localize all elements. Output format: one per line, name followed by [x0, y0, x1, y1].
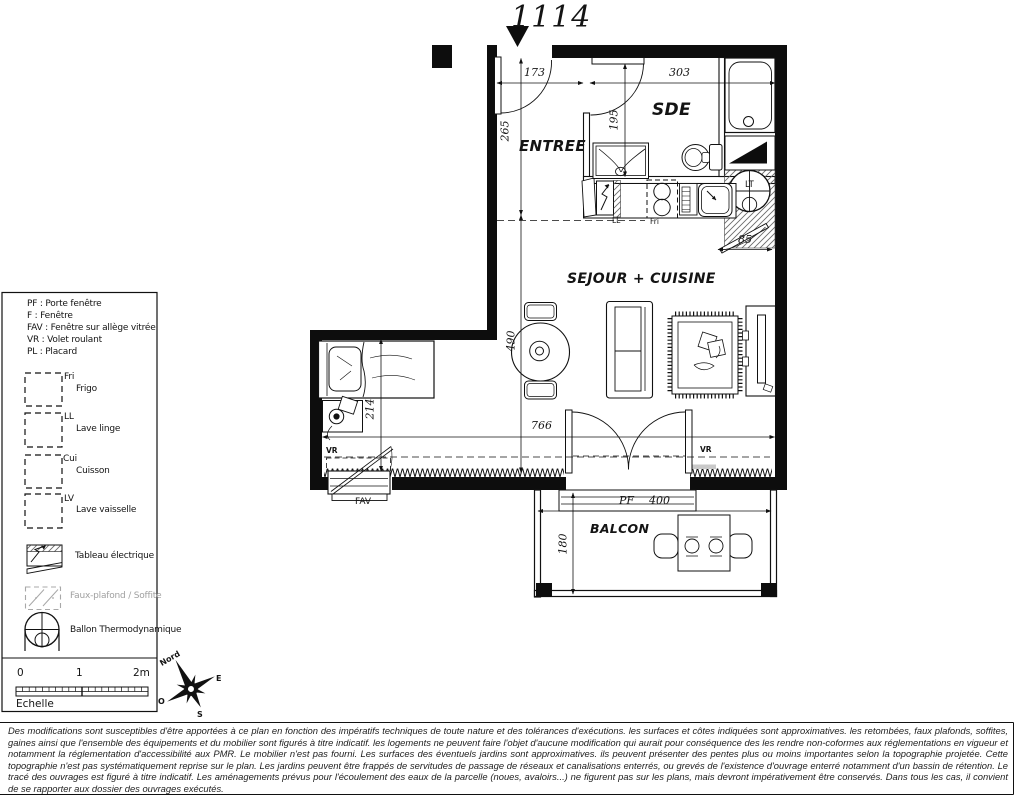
legend-abbr-f: F : Fenêtre [27, 311, 73, 321]
rug [670, 314, 741, 397]
tv-unit [743, 306, 776, 396]
scale-bar [16, 687, 148, 696]
dim-entree-width: 173 [524, 66, 545, 79]
washbasin [593, 143, 649, 179]
legend-false-ceiling-icon [26, 587, 61, 610]
dim-bed-alcove: 214 [364, 399, 377, 420]
vanity [725, 136, 775, 170]
legend-lv-name: Lave vaisselle [76, 505, 136, 515]
dim-closet-door: 85 [738, 233, 752, 246]
legend-appliance-boxes [25, 373, 62, 528]
kitchen-sink [699, 184, 733, 217]
room-label-sde: SDE [652, 100, 691, 120]
legend-water-heater-icon [25, 613, 59, 652]
scale-label: Echelle [16, 698, 54, 710]
label-pf: PF [619, 494, 634, 507]
room-label-balcon: BALCON [590, 521, 649, 536]
shower [725, 58, 775, 133]
bed [319, 341, 435, 398]
kitchen-counter [582, 178, 736, 218]
floor-plan-page: 1114 ENTREE SDE SEJOUR + CUISINE BALCON … [0, 0, 1015, 800]
toilet [682, 145, 722, 171]
compass-east-label: E [216, 674, 221, 683]
dining-table [512, 303, 570, 400]
unit-number: 1114 [511, 0, 591, 35]
label-water-heater: LT [745, 180, 754, 190]
legend-abbr-vr: VR : Volet roulant [27, 335, 102, 345]
scale-tick-1: 1 [76, 667, 83, 679]
legend-fri-name: Frigo [76, 384, 97, 394]
disclaimer-text: Des modifications sont susceptibles d'êt… [8, 725, 1008, 795]
dim-sde-depth: 195 [608, 110, 621, 131]
sde-door [591, 58, 645, 116]
dim-sde-width: 303 [669, 66, 690, 79]
legend-cui-abbr: Cui [63, 454, 77, 464]
scale-tick-0: 0 [17, 667, 24, 679]
legend-abbr-pf: PF : Porte fenêtre [27, 299, 102, 309]
legend-electrical-panel-icon [27, 545, 62, 574]
dim-balcony-width: 400 [649, 494, 670, 507]
label-fridge: Fri [650, 217, 659, 226]
balcony-table-set [654, 515, 752, 571]
label-vr-left: VR [326, 446, 338, 455]
legend-cui-name: Cuisson [76, 466, 110, 476]
washing-machine-strip [614, 181, 621, 218]
legend-abbr-fav: FAV : Fenêtre sur allège vitrée [27, 323, 156, 333]
legend-water-heater-label: Ballon Thermodynamique [70, 625, 181, 635]
dim-balcony-depth: 180 [557, 534, 570, 555]
electrical-panel [597, 181, 614, 215]
nightstand [323, 396, 363, 440]
legend-ll-name: Lave linge [76, 424, 120, 434]
room-label-sejour: SEJOUR + CUISINE [567, 271, 716, 287]
legend-lv-abbr: LV [64, 494, 74, 504]
dim-sejour-depth: 490 [505, 331, 518, 352]
legend-abbr-pl: PL : Placard [27, 347, 77, 357]
legend-electrical-panel-label: Tableau électrique [75, 551, 154, 561]
dim-sejour-width: 766 [531, 419, 552, 432]
label-vr-right: VR [700, 445, 712, 454]
legend-fri-abbr: Fri [64, 372, 74, 382]
french-door [566, 410, 693, 473]
legend-ll-abbr: LL [64, 412, 74, 422]
compass-south-label: S [197, 710, 203, 719]
label-fav-window: FAV [355, 497, 371, 507]
scale-tick-2: 2m [133, 667, 150, 679]
compass-west-label: O [158, 697, 165, 706]
room-label-entree: ENTREE [519, 137, 586, 155]
dim-entree-depth: 265 [499, 121, 512, 142]
sofa [607, 302, 653, 399]
dishwasher [680, 184, 698, 216]
legend-false-ceiling-label: Faux-plafond / Soffite [70, 591, 161, 601]
appliance-open-door [582, 178, 596, 217]
label-washing-machine: LL [612, 216, 620, 225]
